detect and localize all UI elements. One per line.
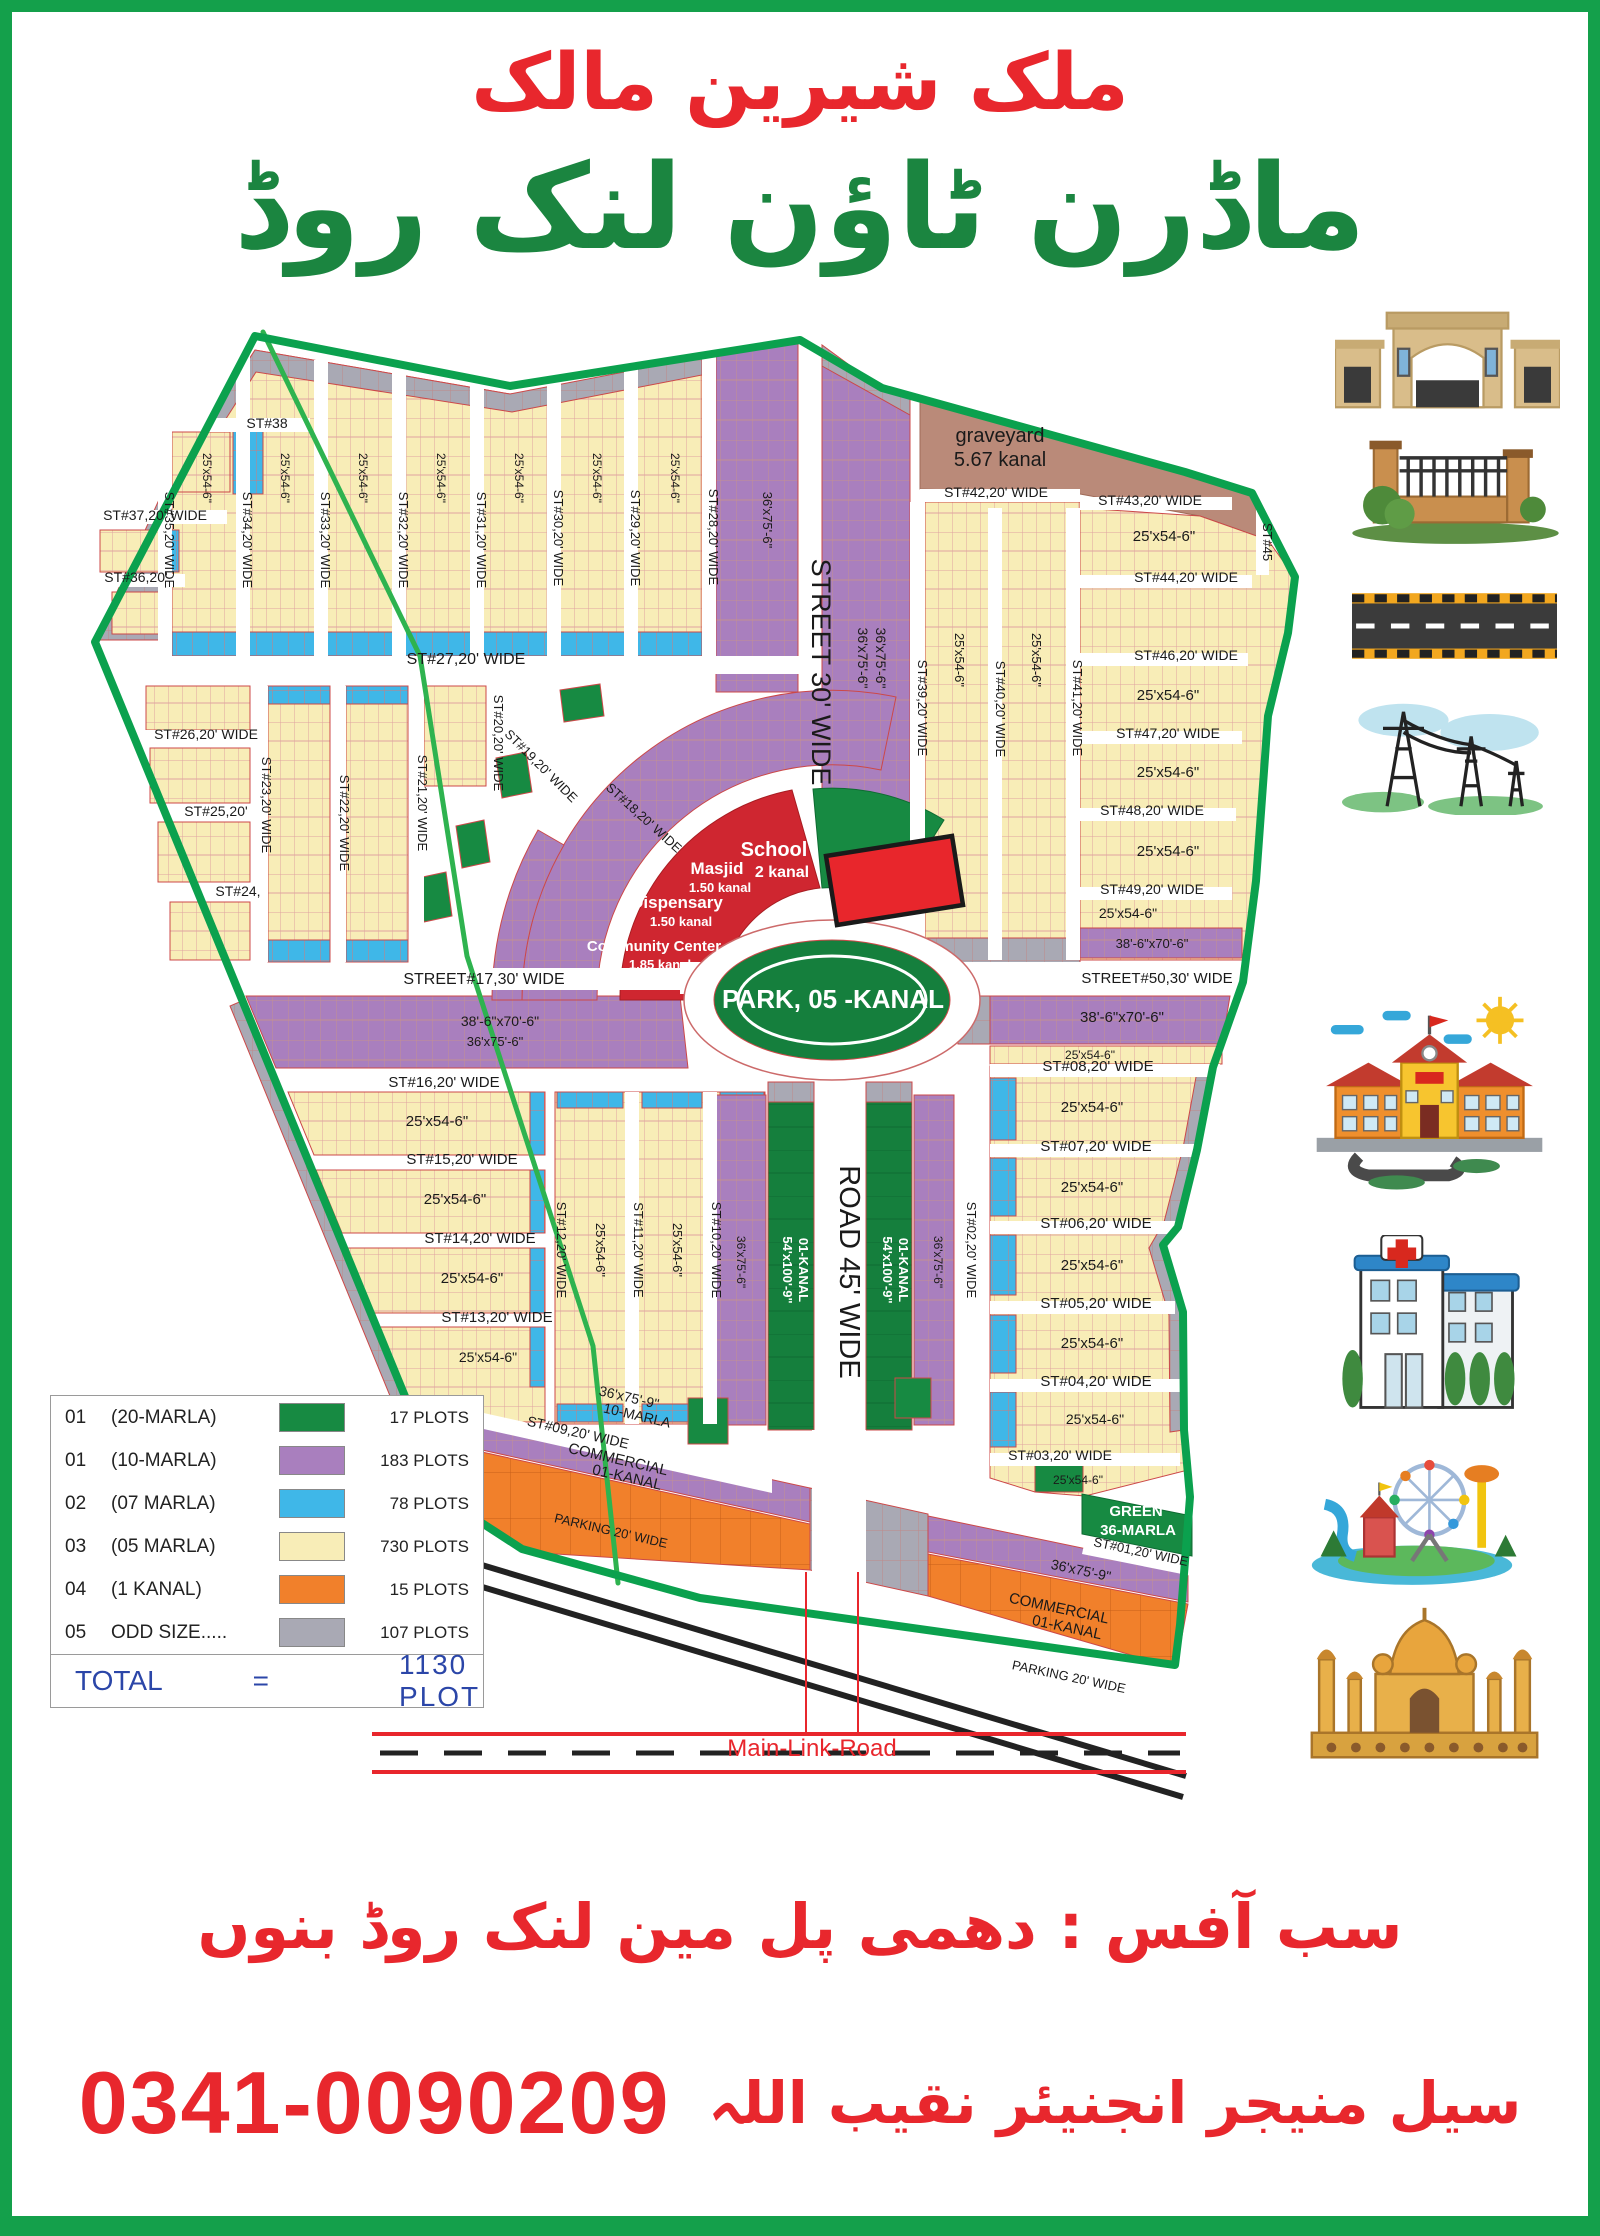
street-label: ST#32,20' WIDE: [396, 492, 411, 589]
legend-row-number: 04: [65, 1579, 111, 1601]
area-label: 25'x54-6": [356, 453, 370, 503]
area-label: Community Center: [587, 938, 721, 955]
street-label: ST#36,20': [104, 569, 167, 585]
legend-total-label: TOTAL: [75, 1665, 163, 1697]
legend-total-value: 1130 PLOT: [399, 1649, 480, 1713]
legend-row-size: (20-MARLA): [111, 1407, 279, 1429]
sales-manager-name: سیل منیجر انجنیئر نقیب اللہ: [708, 2069, 1521, 2137]
street-label: ST#11,20' WIDE: [631, 1202, 646, 1298]
legend-row-number: 01: [65, 1407, 111, 1429]
legend-row-number: 02: [65, 1493, 111, 1515]
street-label: ST#34,20' WIDE: [240, 492, 255, 589]
street-label: ST#30,20' WIDE: [551, 490, 566, 587]
area-label: 36'x75'-6": [855, 628, 871, 689]
street-label: ST#42,20' WIDE: [944, 484, 1048, 500]
legend-row-size: (05 MARLA): [111, 1536, 279, 1558]
legend-row-plots: 15 PLOTS: [371, 1580, 469, 1600]
street-label: ST#04,20' WIDE: [1040, 1373, 1151, 1390]
street-label: ST#37,20' WIDE: [103, 507, 207, 523]
area-label: 25'x54-6": [593, 1223, 608, 1277]
street-label: ST#23,20' WIDE: [259, 757, 274, 854]
area-label: 38'-6"x70'-6": [1080, 1009, 1164, 1026]
area-label: GREEN: [1109, 1503, 1162, 1520]
area-label: 25'x54-6": [1061, 1179, 1123, 1196]
street-label: ST#26,20' WIDE: [154, 726, 258, 742]
area-label: 36'x75'-6": [467, 1034, 524, 1049]
street-label: ST#41,20' WIDE: [1070, 660, 1085, 757]
street-label: ST#45: [1260, 523, 1275, 561]
legend-color-swatch: [279, 1618, 345, 1647]
legend-row-number: 05: [65, 1622, 111, 1644]
street-label: ST#35,20' WIDE: [162, 492, 177, 589]
area-label: 25'x54-6": [1029, 633, 1044, 687]
street-label: ST#03,20' WIDE: [1008, 1447, 1112, 1463]
area-label: Dispensary: [631, 893, 723, 912]
area-label: 54'x100'-9": [880, 1236, 895, 1303]
area-label: 36-MARLA: [1100, 1522, 1176, 1539]
street-label: ST#14,20' WIDE: [424, 1230, 535, 1247]
area-label: 25'x54-6": [441, 1270, 503, 1287]
area-label: 54'x100'-9": [780, 1236, 795, 1303]
area-label: 36'x75'-6": [873, 628, 889, 689]
legend-row-plots: 183 PLOTS: [371, 1451, 469, 1471]
frame-right: [1588, 0, 1600, 2236]
street-label: STREET#17,30' WIDE: [403, 971, 564, 988]
amusement-park-icon: [1302, 1452, 1522, 1587]
street-label: ST#10,20' WIDE: [709, 1202, 724, 1299]
street-label: ST#48,20' WIDE: [1100, 802, 1204, 818]
area-label: 25'x54-6": [1099, 905, 1157, 921]
street-label: STREET 30' WIDE: [806, 559, 836, 786]
area-label: 25'x54-6": [1061, 1099, 1123, 1116]
mosque-icon: [1302, 1605, 1547, 1765]
street-label: ST#47,20' WIDE: [1116, 725, 1220, 741]
legend-row-size: (10-MARLA): [111, 1450, 279, 1472]
street-label: ST#13,20' WIDE: [441, 1309, 552, 1326]
legend-color-swatch: [279, 1446, 345, 1475]
area-label: PARK, 05 -KANAL: [722, 984, 944, 1014]
area-label: 1.85 kanal: [629, 957, 691, 972]
area-label: 25'x54-6": [406, 1113, 468, 1130]
legend-row: 03(05 MARLA)730 PLOTS: [51, 1525, 483, 1568]
legend-row: 05ODD SIZE.....107 PLOTS: [51, 1611, 483, 1654]
area-label: 38'-6"x70'-6": [1116, 936, 1189, 951]
area-label: 25'x54-6": [424, 1191, 486, 1208]
area-label: 01-KANAL: [896, 1238, 911, 1302]
area-label: 25'x54-6": [1066, 1411, 1124, 1427]
frame-top: [0, 0, 1600, 12]
area-label: 36'x75'-6": [734, 1236, 748, 1288]
area-label: 2 kanal: [755, 864, 809, 881]
boundary-wall-icon: [1348, 432, 1563, 544]
area-label: 25'x54-6": [1053, 1473, 1103, 1487]
area-label: 01-KANAL: [796, 1238, 811, 1302]
area-label: 25'x54-6": [670, 1223, 685, 1277]
street-label: ST#28,20' WIDE: [706, 489, 721, 586]
street-label: ST#12,20' WIDE: [554, 1202, 569, 1299]
poster: ملک شیرین مالک ماڈرن ٹاؤن لنک روڈ: [0, 0, 1600, 2236]
legend-color-swatch: [279, 1575, 345, 1604]
area-label: 25'x54-6": [512, 453, 526, 503]
block-purple-band-17: [246, 996, 688, 1068]
legend-row-number: 01: [65, 1450, 111, 1472]
legend-row-plots: 730 PLOTS: [371, 1537, 469, 1557]
legend-row: 01(10-MARLA)183 PLOTS: [51, 1439, 483, 1482]
street-label: ST#15,20' WIDE: [406, 1151, 517, 1168]
main-gate-icon: [1335, 308, 1560, 412]
street-label: STREET#50,30' WIDE: [1081, 970, 1232, 987]
area-label: 25'x54-6": [459, 1349, 517, 1365]
legend-rows: 01(20-MARLA)17 PLOTS01(10-MARLA)183 PLOT…: [51, 1396, 483, 1654]
area-label: 25'x54-6": [1133, 528, 1195, 545]
street-label: ST#02,20' WIDE: [964, 1202, 979, 1299]
area-label: 25'x54-6": [1137, 764, 1199, 781]
area-label: 5.67 kanal: [954, 449, 1046, 471]
street-label: ST#40,20' WIDE: [993, 661, 1008, 758]
area-label: 36'x75'-6": [931, 1236, 945, 1288]
area-label: 25'x54-6": [200, 453, 214, 503]
sub-office-line: سب آفس : دھمی پل مین لنک روڈ بنوں: [0, 1890, 1600, 1963]
street-label: ST#22,20' WIDE: [337, 775, 352, 872]
street-label: ST#44,20' WIDE: [1134, 569, 1238, 585]
street-label: ST#21,20' WIDE: [415, 755, 430, 852]
street-label: ST#49,20' WIDE: [1100, 881, 1204, 897]
street-label: ST#43,20' WIDE: [1098, 492, 1202, 508]
area-label: 25'x54-6": [1061, 1335, 1123, 1352]
street-label: ST#46,20' WIDE: [1134, 647, 1238, 663]
area-label: 25'x54-6": [1065, 1048, 1115, 1062]
street-label: ST#20,20' WIDE: [491, 695, 506, 792]
legend-color-swatch: [279, 1403, 345, 1432]
hospital-icon: [1328, 1235, 1533, 1420]
street-label: ST#27,20' WIDE: [407, 651, 526, 668]
school-icon: [1312, 992, 1547, 1192]
area-label: Main-Link-Road: [727, 1735, 896, 1762]
legend-row-plots: 107 PLOTS: [371, 1623, 469, 1643]
area-label: 25'x54-6": [278, 453, 292, 503]
electricity-towers-icon: [1342, 695, 1547, 815]
legend-row-size: ODD SIZE.....: [111, 1622, 279, 1644]
contact-row: 0341-0090209 سیل منیجر انجنیئر نقیب اللہ: [0, 2052, 1600, 2154]
area-label: 25'x54-6": [1137, 687, 1199, 704]
street-label: ST#06,20' WIDE: [1040, 1215, 1151, 1232]
area-label: 25'x54-6": [952, 633, 967, 687]
area-label: graveyard: [956, 425, 1045, 447]
area-label: 25'x54-6": [1137, 843, 1199, 860]
legend-total: TOTAL = 1130 PLOT: [51, 1654, 483, 1707]
street-label: ST#38: [246, 415, 287, 431]
area-label: PARKING 20' WIDE: [1011, 1657, 1128, 1696]
area-label: 1.50 kanal: [650, 914, 712, 929]
area-label: 25'x54-6": [434, 453, 448, 503]
street-label: ST#05,20' WIDE: [1040, 1295, 1151, 1312]
street-label: ST#16,20' WIDE: [388, 1074, 499, 1091]
street-label: ST#29,20' WIDE: [628, 490, 643, 587]
legend-row-plots: 78 PLOTS: [371, 1494, 469, 1514]
legend-color-swatch: [279, 1489, 345, 1518]
area-label: Masjid: [691, 859, 744, 878]
street-label: ROAD 45' WIDE: [833, 1165, 865, 1378]
frame-left: [0, 0, 12, 2236]
legend-row: 01(20-MARLA)17 PLOTS: [51, 1396, 483, 1439]
legend-row-plots: 17 PLOTS: [371, 1408, 469, 1428]
area-label: School: [741, 839, 808, 861]
street-label: ST#33,20' WIDE: [318, 492, 333, 589]
street-label: ST#39,20' WIDE: [915, 660, 930, 757]
area-label: 36'x75'-6": [760, 492, 775, 549]
street-label: ST#25,20': [184, 803, 247, 819]
area-label: 25'x54-6": [590, 453, 604, 503]
carpeted-road-icon: [1352, 585, 1557, 667]
legend-row-size: (1 KANAL): [111, 1579, 279, 1601]
legend-row: 02(07 MARLA)78 PLOTS: [51, 1482, 483, 1525]
legend-row-number: 03: [65, 1536, 111, 1558]
frame-bottom: [0, 2216, 1600, 2236]
street-label: ST#31,20' WIDE: [474, 492, 489, 589]
phone-number: 0341-0090209: [79, 2052, 671, 2154]
area-label: 25'x54-6": [1061, 1257, 1123, 1274]
legend-color-swatch: [279, 1532, 345, 1561]
legend-equals: =: [253, 1665, 269, 1697]
area-label: 38'-6"x70'-6": [461, 1013, 539, 1029]
legend-row: 04(1 KANAL)15 PLOTS: [51, 1568, 483, 1611]
legend-row-size: (07 MARLA): [111, 1493, 279, 1515]
block-purple-west-of-street30: [716, 342, 798, 692]
legend: 01(20-MARLA)17 PLOTS01(10-MARLA)183 PLOT…: [50, 1395, 484, 1708]
street-label: ST#07,20' WIDE: [1040, 1138, 1151, 1155]
area-label: 25'x54-6": [668, 453, 682, 503]
street-label: ST#24,: [215, 883, 260, 899]
